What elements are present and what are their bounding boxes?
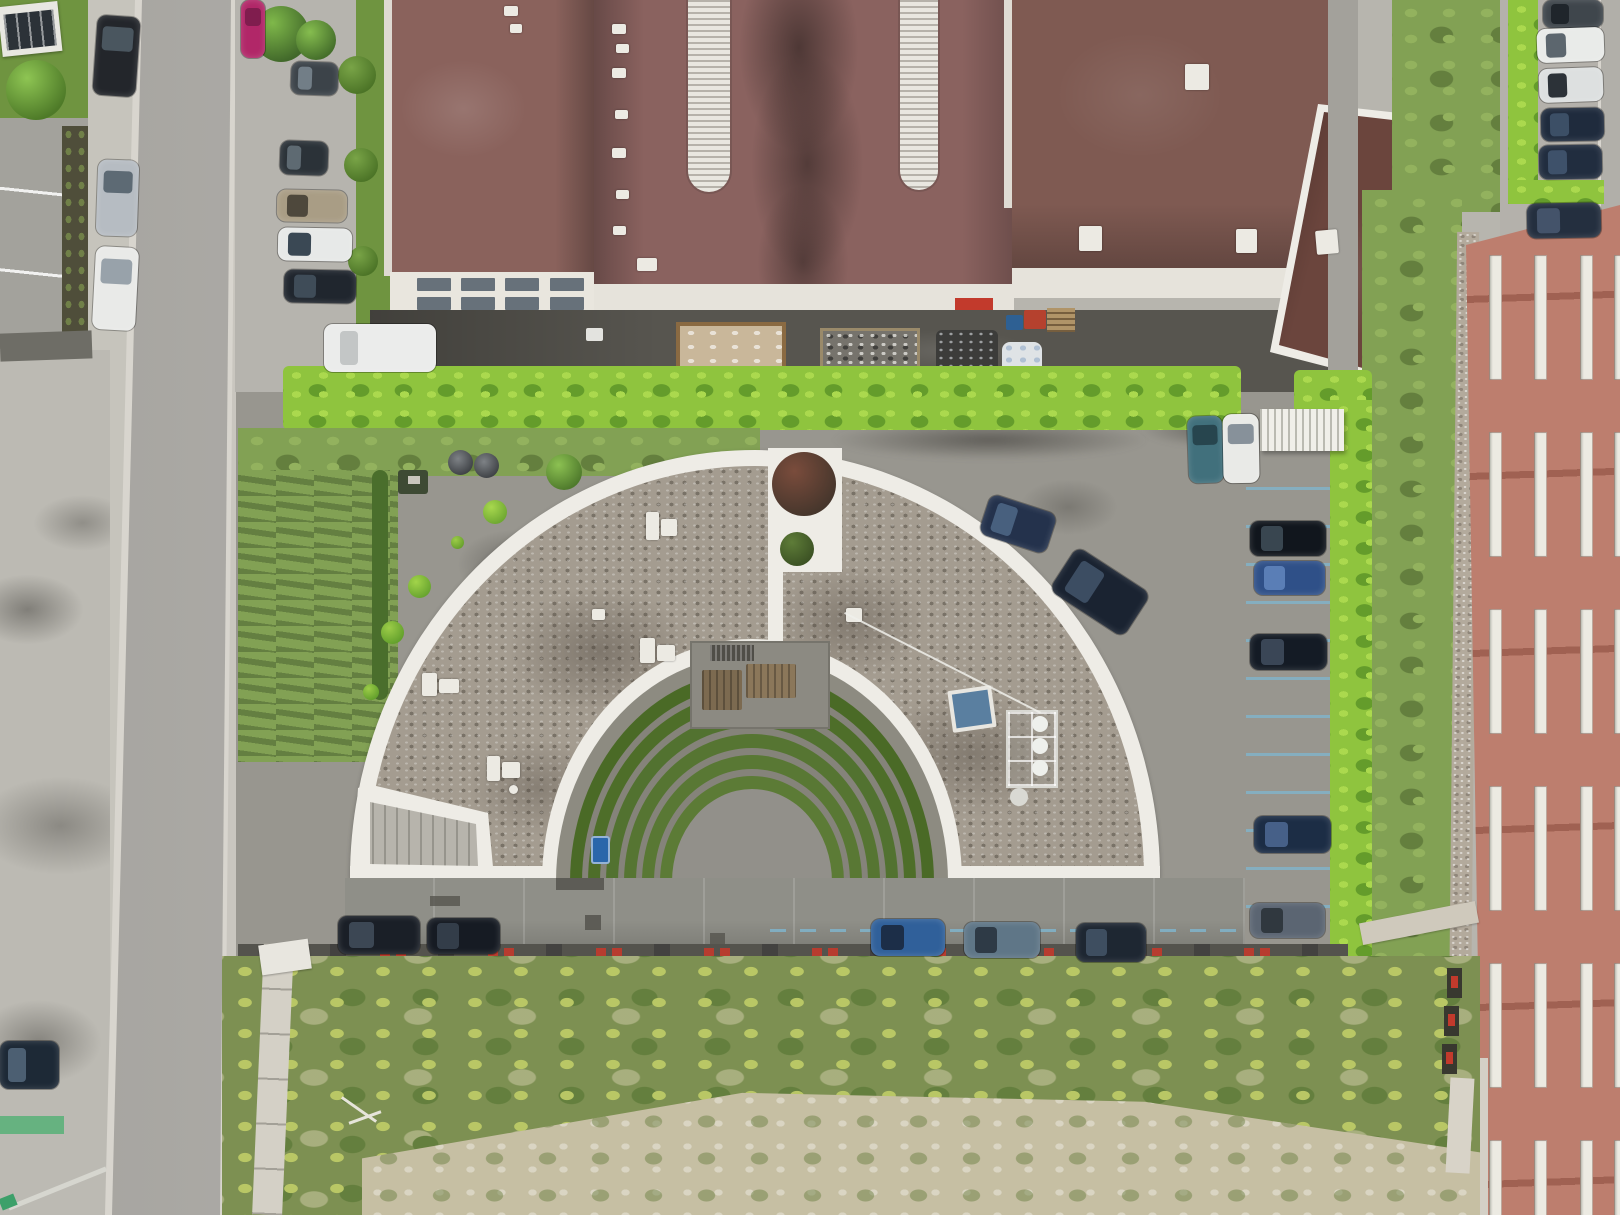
skylight-strip-1 <box>688 0 730 192</box>
apron-wall-edge <box>0 330 92 361</box>
red-building-window <box>1489 609 1502 734</box>
red-building-window <box>1534 1140 1547 1215</box>
red-building-window <box>1534 786 1547 911</box>
red-building-window <box>1580 1140 1593 1215</box>
concrete-apron <box>0 350 110 1215</box>
hvac-fan-3 <box>1032 760 1048 776</box>
white-slab <box>1446 1077 1475 1173</box>
bollard-1 <box>1447 968 1462 998</box>
red-building-window <box>1580 609 1593 734</box>
roof-skylight-window <box>947 685 996 733</box>
red-building-window <box>1489 432 1502 557</box>
platform-grill <box>710 645 754 661</box>
red-building-window <box>1489 1140 1502 1215</box>
sand-patch <box>362 1066 1480 1215</box>
red-building-window <box>1614 609 1620 734</box>
stone-plinth <box>408 476 420 484</box>
red-building-window <box>1580 255 1593 380</box>
red-building-window <box>1489 963 1502 1088</box>
hedge-east <box>1330 400 1372 966</box>
drain-2 <box>430 896 460 906</box>
red-building-window <box>1489 255 1502 380</box>
hall-west-roof <box>392 0 596 272</box>
pallet-stack <box>1047 308 1075 332</box>
bollard-red-mark <box>1448 1014 1455 1026</box>
solar-panel-glass <box>3 9 56 50</box>
north-parking-strip <box>235 0 375 392</box>
hedge-topright-horizontal <box>1508 180 1604 204</box>
solar-panel-structure <box>0 1 62 57</box>
wasteland <box>222 956 1480 1215</box>
red-building-window <box>1614 786 1620 911</box>
roof-round-vent <box>1010 788 1028 806</box>
picnic-bench-1 <box>702 670 742 710</box>
skylight-strip-2 <box>900 0 938 190</box>
red-building-window <box>1614 963 1620 1088</box>
garden-hedge-line <box>372 470 388 700</box>
hedge-top <box>283 366 1241 430</box>
red-building-window <box>1489 786 1502 911</box>
bollard-2 <box>1444 1006 1459 1036</box>
drain-1 <box>556 878 604 890</box>
red-building-window <box>1580 432 1593 557</box>
red-building-window <box>1534 255 1547 380</box>
entrance-wedge <box>348 778 498 880</box>
bike-lane-stripe <box>0 1116 64 1134</box>
hedge-topright-vertical <box>1508 0 1538 190</box>
aerial-photo-stage <box>0 0 1620 1215</box>
hall-main-roof <box>594 0 1012 298</box>
bollard-red-mark <box>1446 1052 1453 1064</box>
hvac-fan-2 <box>1032 738 1048 754</box>
roof-notch <box>768 448 842 572</box>
bike-shelter <box>1260 409 1344 451</box>
red-building-window <box>1614 1140 1620 1215</box>
ev-charging-box <box>591 836 610 864</box>
blue-dashed-line <box>770 929 1242 932</box>
south-walkway <box>345 878 1245 948</box>
bollard-red-mark <box>1451 976 1458 988</box>
red-building-window <box>1534 609 1547 734</box>
bollard-3 <box>1442 1044 1457 1074</box>
red-building-window <box>1614 432 1620 557</box>
hvac-fan-1 <box>1032 716 1048 732</box>
lawn-right <box>1362 190 1462 968</box>
blue-bin <box>1006 315 1023 330</box>
lawn-top-right <box>1392 0 1512 212</box>
picnic-bench-2 <box>746 664 796 698</box>
path-behind-hall <box>1328 0 1358 386</box>
red-building-window <box>1580 786 1593 911</box>
red-building-window <box>1534 963 1547 1088</box>
drain-3 <box>585 915 601 930</box>
red-building-window <box>1580 963 1593 1088</box>
red-building-window <box>1614 255 1620 380</box>
red-container <box>1024 310 1046 329</box>
red-building-window <box>1534 432 1547 557</box>
ac-unit <box>586 328 603 341</box>
